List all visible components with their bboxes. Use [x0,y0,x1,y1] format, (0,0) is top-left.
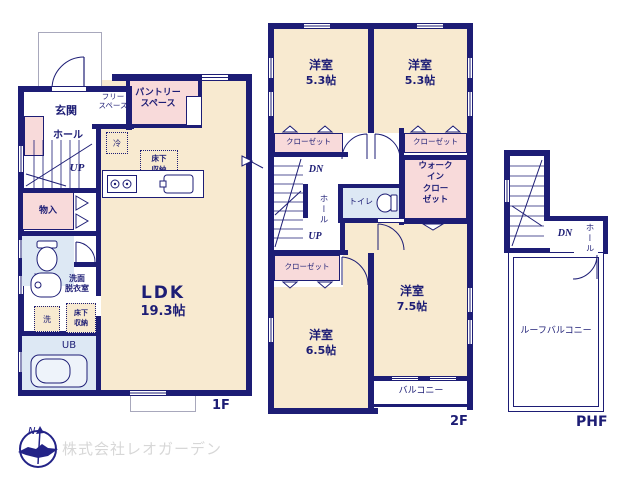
roof-balcony-label: ルーフバルコニー [512,326,600,337]
door-swing-icon [282,281,334,289]
window [268,318,274,342]
compass-icon: N [14,420,64,474]
toilet-icon [33,241,61,273]
balcony-label: バルコニー [380,386,462,397]
door-arc [341,133,368,160]
stairs-dn-label: DN [303,164,329,177]
wall [246,74,252,396]
room-ldk-size: 19.3帖 [128,304,198,320]
free-space-label: フリー スペース [94,92,132,111]
door-swing-icon [282,125,334,133]
closet-ne-label: クローゼット [404,137,467,146]
room-ne-name: 洋室 [408,58,432,72]
double-door-icon [74,194,90,230]
entry-arrow-icon [240,152,264,170]
wall [112,74,252,81]
wall [603,216,608,254]
door-swing-icon [410,125,462,133]
door-gap [96,296,101,316]
washroom-label: 洗面 脱衣室 [56,274,98,294]
kitchen-sink-icon [160,174,194,194]
wall [374,404,473,407]
window [268,92,274,116]
room-nw-size: 5.3帖 [306,74,337,87]
room-ne-label: 洋室 5.3帖 [390,58,450,88]
window [417,23,443,29]
closet-nw-label: クローゼット [274,137,343,146]
wall [544,216,608,221]
stairs-dn-label: DN [552,228,578,241]
floor-1f-label: 1F [212,398,230,413]
toilet-icon [376,191,398,215]
stairs-icon [510,156,544,248]
door-swing-icon [421,223,445,231]
hall-2f-label: ホール [314,186,328,234]
floor-2f-label: 2F [450,414,468,429]
room-sw-label: 洋室 6.5帖 [291,328,351,358]
room-ldk-label: LDK [128,283,198,304]
walk-in-closet-label: ウォーク イン クロー ゼット [406,161,465,207]
door-arc [377,223,405,251]
entrance-door-gap [52,87,86,91]
wall [467,23,473,410]
wall [96,124,101,392]
fridge-space: 冷 [106,132,128,154]
hall-label: ホール [44,130,92,143]
window [467,92,473,116]
underfloor-storage-wash: 床下 収納 [66,303,96,333]
door-arc [374,133,401,160]
floor-plan-canvas: UP 玄関 フリー スペース パントリー スペース ホール 冷 床下 収納 物入 [0,0,640,480]
floor-phf-label: PHF [576,414,608,430]
stairs-icon [273,157,303,249]
door-arc [74,240,96,264]
room-sw-name: 洋室 [309,328,333,342]
room-se-size: 7.5帖 [397,300,428,313]
company-watermark: 株式会社レオガーデン [62,438,222,459]
closet-sw-label: クローゼット [274,262,340,271]
toilet-2f-label: トイレ [344,197,378,207]
pantry-label: パントリー スペース [128,88,188,111]
room-se-label: 洋室 7.5帖 [382,284,442,314]
room-ne-size: 5.3帖 [405,74,436,87]
wall [368,26,374,133]
wall [303,184,308,218]
wall [268,408,378,414]
window [202,74,228,81]
room-sw-size: 6.5帖 [306,344,337,357]
window [467,288,473,312]
door-arc [572,254,598,280]
bathtub-icon [30,354,88,388]
room-genkan-label: 玄関 [38,104,94,118]
wall [340,222,345,254]
door-gap [378,219,404,222]
stove-icon [107,175,137,193]
window [268,58,274,78]
wall [544,150,550,220]
laundry-space: 洗 [34,306,60,332]
pantry-counter [186,96,202,126]
window [467,58,473,78]
room-nw-name: 洋室 [309,58,333,72]
stairs-up-label: UP [64,162,90,176]
unit-bath-label: UB [54,340,84,353]
compass-letter: N [28,426,36,437]
room-se-name: 洋室 [400,284,424,298]
window [467,320,473,344]
window [304,23,330,29]
entrance-step [130,396,196,412]
room-nw-label: 洋室 5.3帖 [291,58,351,88]
door-arc [341,256,369,286]
storage-label: 物入 [26,206,70,217]
